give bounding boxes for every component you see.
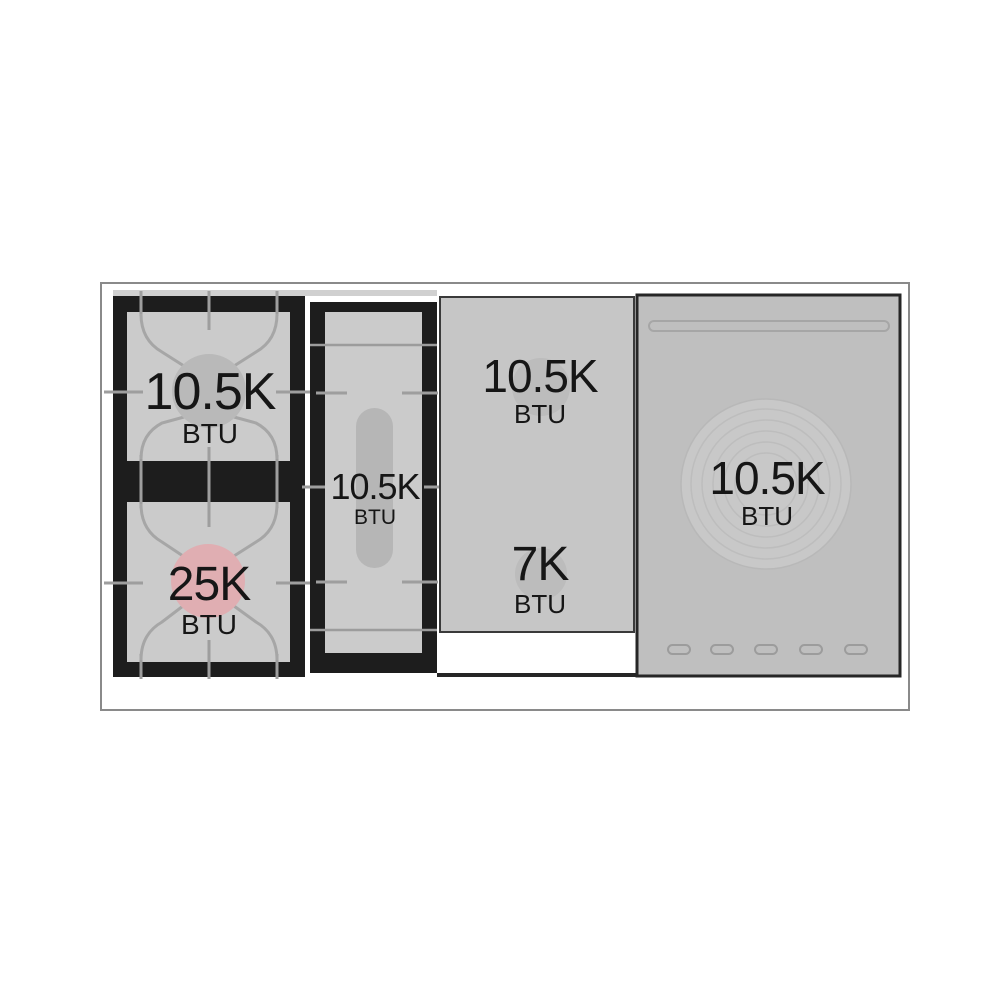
griddle-front-ledge xyxy=(441,633,634,674)
btu-unit: BTU xyxy=(709,503,824,529)
btu-unit: BTU xyxy=(482,401,597,427)
btu-value: 10.5K xyxy=(709,455,824,501)
cooktop-diagram-graphics xyxy=(0,0,1000,1000)
french-top-btu-label: 10.5K BTU xyxy=(709,455,824,529)
btu-value: 10.5K xyxy=(330,469,419,505)
btu-unit: BTU xyxy=(168,611,250,639)
btu-value: 10.5K xyxy=(482,353,597,399)
back-trim-line xyxy=(113,290,437,296)
burner-left-rear-btu-label: 10.5K BTU xyxy=(145,366,276,448)
griddle-rear-btu-label: 10.5K BTU xyxy=(482,353,597,427)
btu-unit: BTU xyxy=(145,420,276,448)
btu-value: 25K xyxy=(168,561,250,609)
griddle-front-btu-label: 7K BTU xyxy=(512,541,569,617)
burner-left-front-btu-label: 25K BTU xyxy=(168,561,250,639)
btu-value: 7K xyxy=(512,541,569,589)
btu-unit: BTU xyxy=(512,591,569,617)
burner-center-oval-btu-label: 10.5K BTU xyxy=(330,469,419,528)
btu-value: 10.5K xyxy=(145,366,276,418)
btu-unit: BTU xyxy=(330,507,419,528)
cooktop-diagram: 10.5K BTU 25K BTU 10.5K BTU 10.5K BTU 7K… xyxy=(0,0,1000,1000)
